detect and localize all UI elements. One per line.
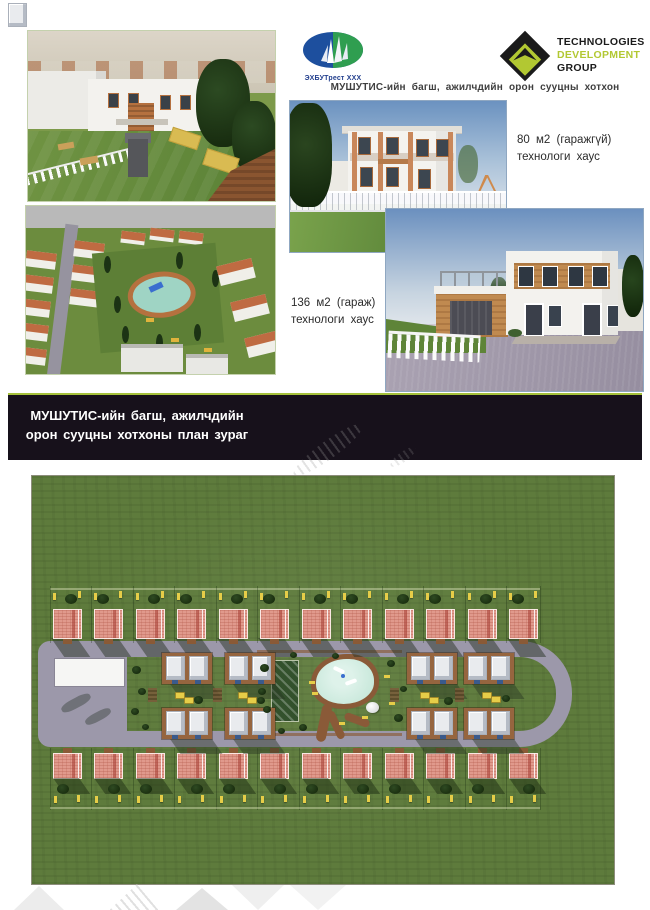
street-lamp [451,591,454,598]
duplex-roof-panel [434,711,453,735]
window [592,266,608,287]
plan-house [302,609,331,639]
tree [458,145,478,183]
plan-house [53,753,82,779]
duplex-house [464,653,514,684]
duplex-door [258,735,264,739]
gallery-panel [8,3,27,27]
house-step [146,639,155,644]
duplex-house [407,708,457,739]
window [360,167,373,187]
parked-car [184,697,194,704]
plan-lot [382,586,416,643]
window [386,137,399,155]
park-tree [260,664,269,672]
plan-lot [506,586,540,643]
duplex-roof-panel [468,656,487,680]
park-tree [263,706,271,713]
duplex-door [440,680,446,684]
walkway [512,336,621,344]
duplex-roof-panel [189,656,208,680]
plan-house [260,753,289,779]
window [386,167,399,187]
street-lamp [244,591,247,598]
tdg-logo-text: TECHNOLOGIES DEVELOPMENT GROUP [557,36,645,75]
tdg-line-2: DEVELOPMENT [557,49,645,62]
park-tree [332,653,339,659]
caption-line: 136 м2 (гараж) [291,295,375,312]
park-tree [394,714,403,722]
ehbutrest-logo-mark [301,31,365,69]
plan-lot [340,586,374,643]
plan-lot [216,748,250,810]
street-lamp [220,796,223,803]
plan-lot [174,586,208,643]
duplex-house [464,708,514,739]
plan-house [177,753,206,779]
parked-car [491,696,501,703]
window [542,266,558,287]
park-tree [299,724,307,731]
house-step [312,639,321,644]
yard-tree [263,594,275,604]
duplex-door [235,680,241,684]
duplex-roof-panel [229,656,248,680]
yard-tree [140,784,152,794]
duplex-roof-panel [252,711,271,735]
vacant-lot [55,659,124,686]
balcony [116,119,168,125]
bottom-lot-row [50,748,541,810]
window [416,139,429,157]
banner-line: МУШУТИС-ийн багш, ажилчдийн [22,406,252,425]
house-step [436,639,445,644]
duplex-door [195,735,201,739]
window [568,266,584,287]
plan-house [53,609,82,639]
plan-lot [50,586,84,643]
door [582,303,602,337]
yard-tree [306,784,318,794]
street-lamp [409,795,412,802]
parked-car [247,697,257,704]
street-lamp [533,795,536,802]
street-lamp [77,795,80,802]
garage-door [450,301,492,335]
top-lot-row [50,586,541,643]
bench [146,318,154,322]
house-80-caption: 80 м2 (гаражгүй) технологи хаус [517,132,611,166]
street-lamp [410,591,413,598]
tdg-line-1: TECHNOLOGIES [557,36,645,49]
yard-tree [389,784,401,794]
plan-house [385,753,414,779]
park-tree [142,724,149,730]
caption-line: технологи хаус [291,312,375,329]
park-tree [258,688,266,695]
poplar-tree [176,252,183,269]
street-lamp [219,593,222,600]
street-lamp [469,796,472,803]
duplex-roof-panel [434,656,453,680]
plan-house [136,753,165,779]
duplex-door [235,735,241,739]
yard-tree [57,784,69,794]
plan-lot [174,748,208,810]
street-lamp [386,796,389,803]
bush [508,329,522,337]
plan-lot [91,748,125,810]
house-step [395,639,404,644]
plan-lot [133,586,167,643]
poplar-tree [194,324,201,341]
window [160,95,171,110]
yard-tree [512,594,524,604]
poplar-tree [114,296,121,313]
park-bench [339,722,345,725]
park-tree [131,708,139,715]
street-lamp [367,795,370,802]
banner-line: орон сууцны хотхоны план зураг [22,425,252,444]
house [25,346,47,366]
yard-tree [346,594,358,604]
plan-house [94,753,123,779]
yard-tree [440,784,452,794]
plan-house [509,753,538,779]
building [121,344,183,372]
window [548,305,562,327]
street-lamp [161,591,164,598]
window [518,266,534,287]
street-lamp [285,591,288,598]
road-stub [62,724,96,737]
park-tree [138,688,146,695]
duplex-door [195,680,201,684]
park-tree [194,696,203,704]
tree [622,255,644,317]
plan-banner-text: МУШУТИС-ийн багш, ажилчдийн орон сууцны … [22,406,252,444]
yard-tree [314,594,326,604]
page-title: МУШУТИС-ийн багш, ажилчдийн орон сууцны … [310,82,640,93]
plan-house [343,609,372,639]
plan-lot [257,748,291,810]
park-bench [362,716,368,719]
yard-tree [97,594,109,604]
street-lamp [201,795,204,802]
plan-lot [299,586,333,643]
plan-lot [340,748,374,810]
park-tree [444,697,453,705]
park-tree [400,686,407,692]
street-lamp [368,591,371,598]
parked-car [429,697,439,704]
street-lamp [510,796,513,803]
duplex-door [172,735,178,739]
street-lamp [136,593,139,600]
tdg-logo: TECHNOLOGIES DEVELOPMENT GROUP [498,29,648,85]
yard-tree [397,594,409,604]
aerial-render [25,205,276,375]
yard-tree [231,594,243,604]
yard-tree [180,594,192,604]
street-lamp [137,796,140,803]
street-lamp [303,796,306,803]
plan-lot [50,748,84,810]
plan-house [302,753,331,779]
house-136-caption: 136 м2 (гараж) технологи хаус [291,295,375,329]
street-lamp [243,795,246,802]
plan-house [468,609,497,639]
park-bench [389,702,395,705]
plan-house [94,609,123,639]
plan-house [426,609,455,639]
window [358,137,371,155]
house-step [63,639,72,644]
plan-lot [423,748,457,810]
park-tree [257,697,265,704]
duplex-door [258,680,264,684]
pool [126,269,198,321]
street-lamp [493,591,496,598]
window [108,93,119,108]
barbecue [128,139,148,177]
door [524,303,544,337]
street-lamp [78,591,81,598]
parking-pad [213,688,222,702]
street-lamp [385,593,388,600]
duplex-roof-panel [411,711,430,735]
street-lamp [160,795,163,802]
street-lamp [202,591,205,598]
watermark-triangle [232,885,284,910]
street-lamp [450,795,453,802]
plan-house [177,609,206,639]
caption-line: технологи хаус [517,149,611,166]
house-step [229,639,238,644]
yard-tree [148,594,160,604]
house [25,322,49,342]
poplar-tree [122,326,129,343]
plan-lot [216,586,250,643]
street-lamp [261,796,264,803]
duplex-roof-panel [189,711,208,735]
house-step [519,639,528,644]
watermark-triangle [176,888,228,910]
caption-line: 80 м2 (гаражгүй) [517,132,611,149]
window [180,95,191,110]
street-lamp [534,591,537,598]
house-step [187,639,196,644]
pilaster [408,132,413,194]
street-lamp [178,796,181,803]
plan-lot [382,748,416,810]
plan-house [468,753,497,779]
plan-house [219,609,248,639]
house-step [353,639,362,644]
courtyard-render [27,30,276,202]
plan-lot [465,748,499,810]
duplex-door [172,680,178,684]
duplex-door [440,735,446,739]
plan-house [343,753,372,779]
street-lamp [95,796,98,803]
plan-lot [506,748,540,810]
garage-trim [434,286,510,294]
duplex-door [474,735,480,739]
street-lamp [53,593,56,600]
duplex-roof-panel [229,711,248,735]
park-tree [502,695,510,702]
duplex-door [417,680,423,684]
plan-house [260,609,289,639]
tdg-line-3: GROUP [557,62,645,75]
plan-lot [423,586,457,643]
duplex-house [162,653,212,684]
playground-dome [366,702,379,713]
duplex-roof-panel [468,711,487,735]
plan-lot [465,586,499,643]
watermark-triangle [101,883,161,910]
park-tree [278,728,285,734]
watermark-triangle [290,885,346,910]
plan-lot [299,748,333,810]
duplex-door [474,680,480,684]
park-tree [132,666,141,674]
building [186,354,228,374]
watermark-triangle [14,886,64,910]
house-step [478,639,487,644]
tdg-logo-mark [498,29,552,83]
parking-pad [390,688,399,702]
park-bench [309,681,315,684]
window [436,139,449,157]
parking-pad [455,688,464,702]
street-lamp [118,795,121,802]
yard-tree [480,594,492,604]
yard-tree [65,594,77,604]
street-lamp [468,593,471,600]
duplex-roof-panel [166,711,185,735]
house-step [104,639,113,644]
yard-tree [523,784,535,794]
window [418,169,431,189]
house [25,274,54,294]
street-lamp [54,796,57,803]
plan-house [219,753,248,779]
duplex-door [417,735,423,739]
duplex-roof-panel [166,656,185,680]
street-lamp [492,795,495,802]
yard-tree [472,784,484,794]
brochure-page: ЭХБУТрест XXX TECHNOLOGIES DEVELOPMENT G… [0,0,650,910]
plan-house [426,753,455,779]
bench [204,348,212,352]
street-lamp [344,796,347,803]
plan-house [385,609,414,639]
plan-house [509,609,538,639]
park-bench [312,692,318,695]
bench [171,338,179,342]
park-bench [384,675,390,678]
street-lamp [327,591,330,598]
ehbutrest-logo: ЭХБУТрест XXX [296,31,370,83]
street-lamp [284,795,287,802]
street-lamp [326,795,329,802]
plan-lot [91,586,125,643]
tree [289,103,332,207]
site-plan [31,475,615,885]
pool-deck [311,654,379,709]
yard-tree [429,594,441,604]
house-step [270,639,279,644]
duplex-roof-panel [491,656,510,680]
park-tree [290,652,297,658]
street-lamp [119,591,122,598]
park-tree [387,660,395,667]
poplar-tree [104,256,111,273]
duplex-roof-panel [491,711,510,735]
parking-pad [148,688,157,702]
duplex-door [497,735,503,739]
duplex-house [407,653,457,684]
pool-toy [341,674,345,678]
plan-house [136,609,165,639]
house [25,298,51,318]
yard-tree [223,784,235,794]
street-lamp [427,796,430,803]
picket-fence [387,331,480,363]
balcony [378,159,408,164]
duplex-roof-panel [411,656,430,680]
house-136-render [385,208,644,392]
street-lamp [302,593,305,600]
plan-lot [133,748,167,810]
duplex-door [497,680,503,684]
plan-lot [257,586,291,643]
sky [26,206,275,228]
ehbutrest-logo-caption: ЭХБУТрест XXX [296,75,370,82]
pilaster [352,132,357,194]
duplex-house [162,708,212,739]
